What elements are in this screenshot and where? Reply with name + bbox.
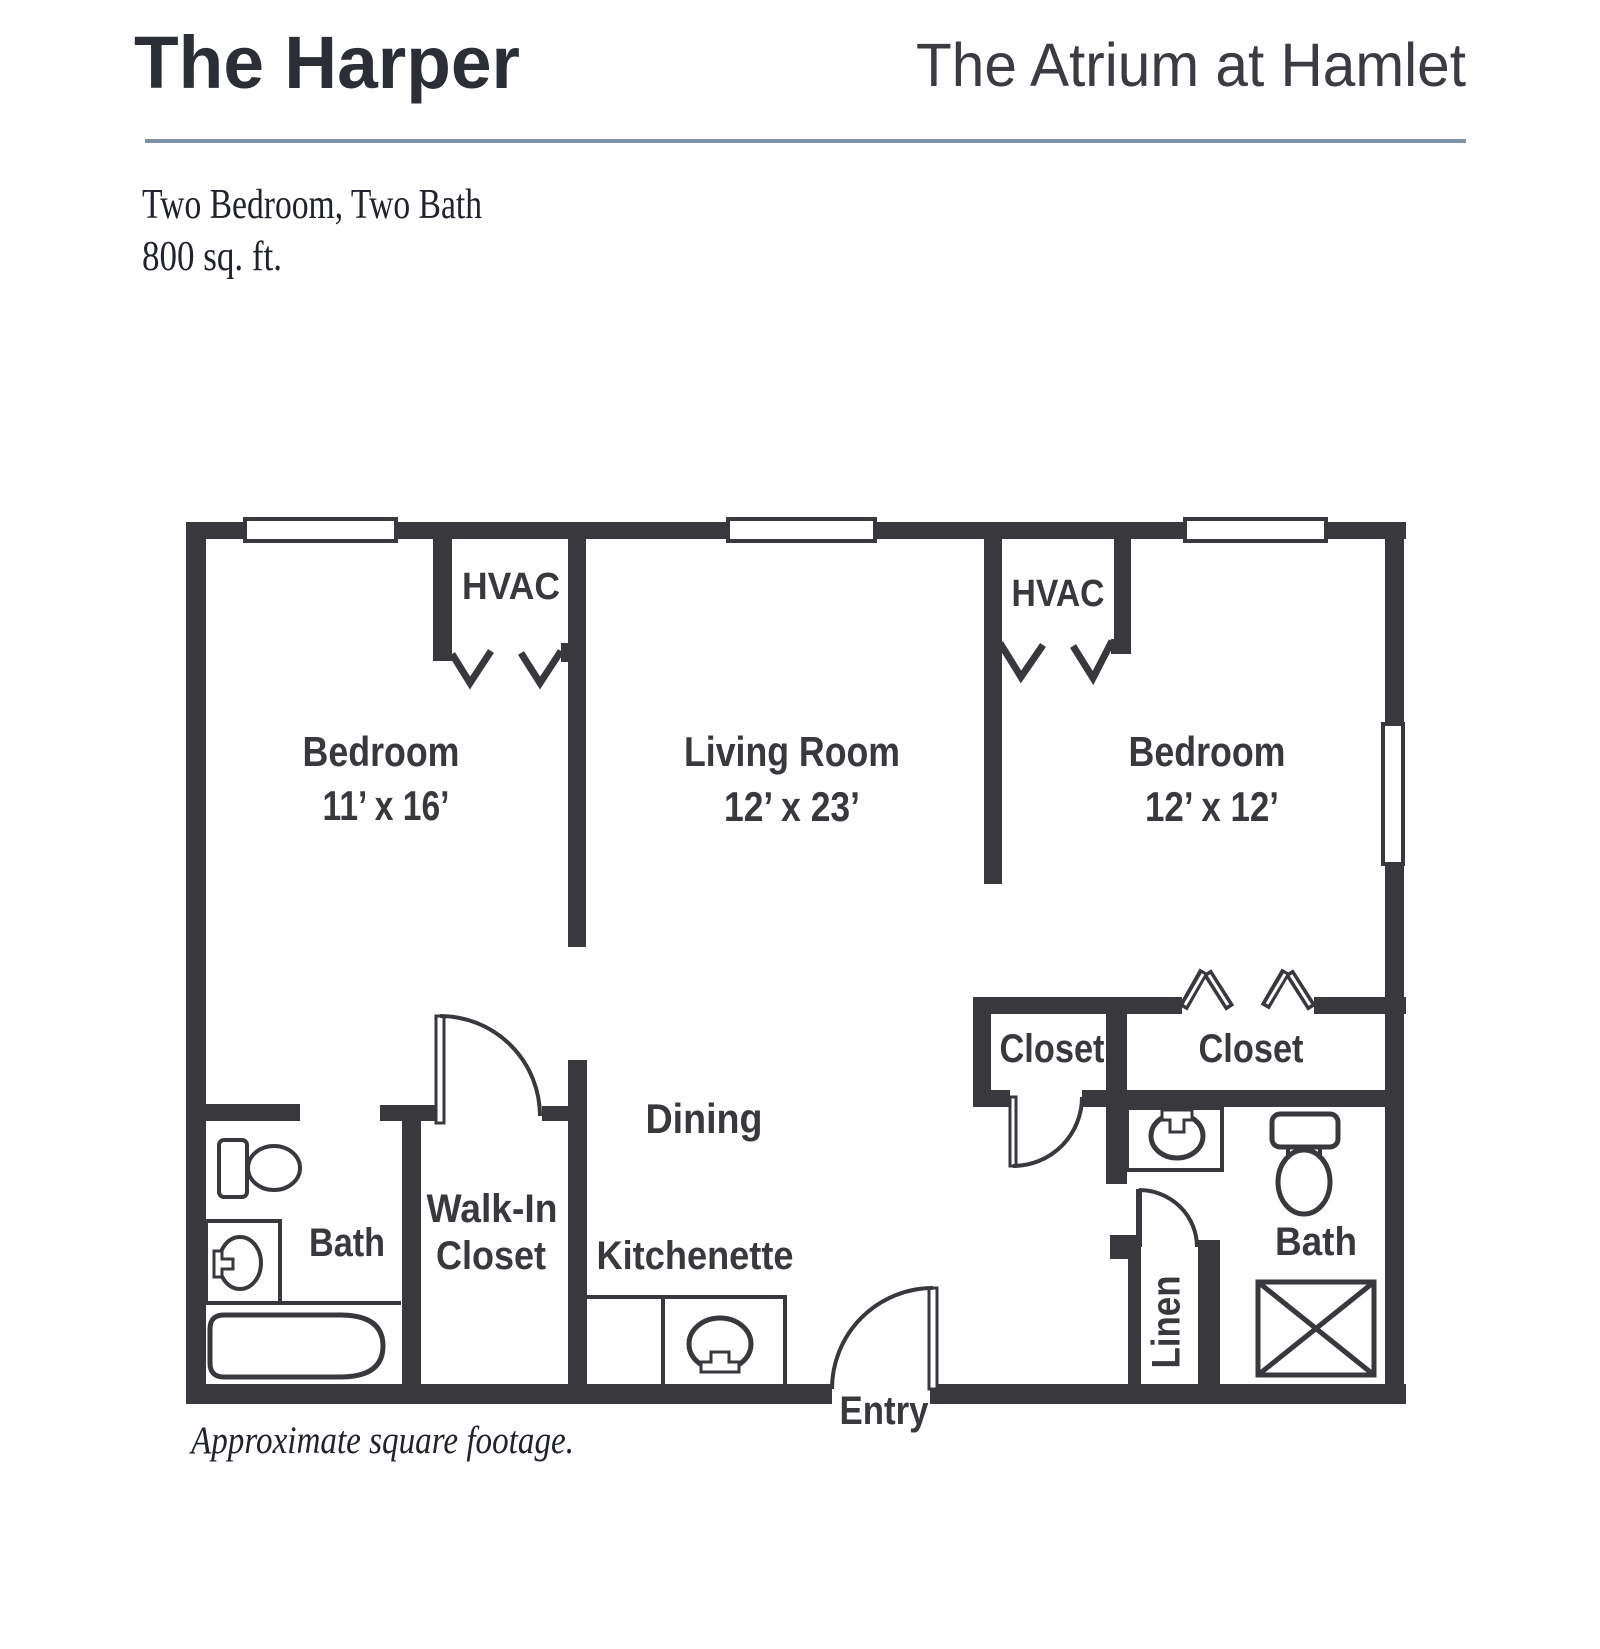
svg-text:12’ x 12’: 12’ x 12’ — [1145, 783, 1279, 830]
svg-text:Walk-In: Walk-In — [427, 1187, 558, 1231]
svg-text:Dining: Dining — [646, 1095, 763, 1142]
svg-text:Bath: Bath — [309, 1221, 385, 1265]
svg-text:Kitchenette: Kitchenette — [597, 1234, 794, 1278]
svg-text:Closet: Closet — [1000, 1027, 1105, 1071]
svg-text:11’ x 16’: 11’ x 16’ — [323, 782, 450, 829]
svg-text:Linen: Linen — [1145, 1276, 1189, 1369]
svg-text:Living Room: Living Room — [684, 728, 900, 775]
svg-text:Approximate square footage.: Approximate square footage. — [188, 1419, 574, 1462]
svg-text:The Harper: The Harper — [134, 21, 520, 104]
svg-text:Bath: Bath — [1275, 1220, 1357, 1264]
svg-text:HVAC: HVAC — [1012, 573, 1105, 615]
svg-text:Entry: Entry — [840, 1389, 930, 1433]
svg-text:Bedroom: Bedroom — [303, 728, 460, 775]
svg-text:12’ x 23’: 12’ x 23’ — [724, 783, 860, 830]
svg-text:Bedroom: Bedroom — [1129, 728, 1286, 775]
svg-text:Closet: Closet — [436, 1234, 546, 1278]
svg-text:800 sq. ft.: 800 sq. ft. — [142, 234, 282, 280]
svg-text:HVAC: HVAC — [462, 566, 560, 608]
svg-text:Two Bedroom, Two Bath: Two Bedroom, Two Bath — [142, 182, 482, 228]
svg-text:Closet: Closet — [1199, 1027, 1304, 1071]
svg-text:The Atrium at Hamlet: The Atrium at Hamlet — [916, 31, 1466, 99]
